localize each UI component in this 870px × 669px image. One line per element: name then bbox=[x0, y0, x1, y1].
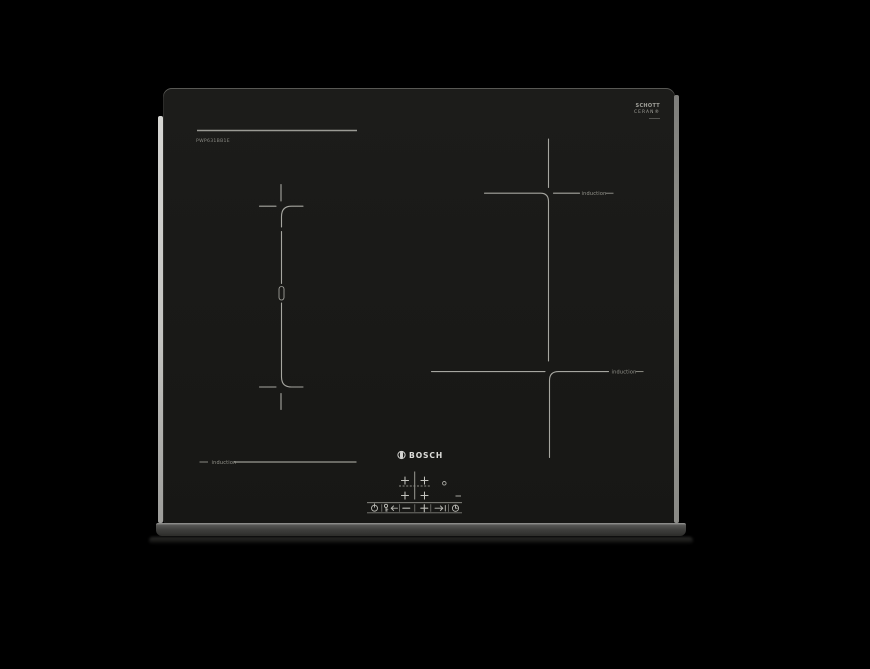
timer-clock-hands bbox=[456, 506, 458, 508]
product-photo-stage: PWP631BB1E SCHOTT CERAN® bbox=[0, 0, 870, 669]
cooktop-markings: PWP631BB1E SCHOTT CERAN® bbox=[0, 0, 870, 669]
boost-key[interactable] bbox=[435, 505, 445, 511]
right-zones-marking bbox=[432, 139, 609, 458]
induction-labels: induction induction induction bbox=[200, 191, 644, 466]
zone-top-right-cross bbox=[485, 193, 549, 361]
induction-label-bottom-left: induction bbox=[212, 460, 237, 466]
flex-zone-lower-elbow bbox=[282, 303, 304, 387]
zone-select-rear-right-key[interactable]: + bbox=[419, 472, 429, 487]
plus-key[interactable] bbox=[421, 505, 428, 512]
bosch-logo: BOSCH bbox=[398, 451, 443, 460]
flex-zone-marking bbox=[260, 185, 304, 410]
timer-key[interactable] bbox=[452, 505, 458, 511]
key-lock-icon-stem bbox=[386, 508, 388, 512]
zone-select-front-right-key[interactable]: + bbox=[419, 487, 429, 502]
zone-selector-grid: + + + + bbox=[399, 472, 461, 503]
bosch-logo-armature bbox=[400, 452, 403, 459]
boost-arrow-icon bbox=[435, 505, 445, 511]
zone-bottom-right-cross bbox=[550, 372, 609, 458]
flex-bridge-icon bbox=[279, 287, 284, 301]
model-print: PWP631BB1E bbox=[196, 131, 357, 145]
power-key[interactable] bbox=[372, 504, 378, 511]
arrow-left-icon bbox=[391, 506, 397, 511]
key-lock-key[interactable] bbox=[384, 504, 387, 511]
plus-key-icon bbox=[421, 505, 428, 512]
induction-label-top-right: induction bbox=[582, 191, 607, 197]
schott-line: SCHOTT bbox=[636, 103, 661, 109]
bosch-anchor-icon bbox=[398, 451, 405, 458]
bosch-wordmark: BOSCH bbox=[409, 451, 443, 460]
zone-select-rear-left-key[interactable]: + bbox=[400, 472, 410, 487]
induction-label-bottom-right: induction bbox=[612, 370, 637, 376]
zone-select-front-left-key[interactable]: + bbox=[400, 487, 410, 502]
indicator-dot bbox=[443, 482, 447, 486]
key-lock-icon bbox=[384, 504, 387, 507]
ceran-line: CERAN® bbox=[634, 108, 660, 115]
model-number: PWP631BB1E bbox=[196, 138, 230, 144]
arrow-left-key[interactable] bbox=[391, 506, 397, 511]
flex-zone-top-elbow bbox=[282, 206, 304, 227]
schott-ceran-logo: SCHOTT CERAN® bbox=[634, 103, 660, 119]
control-strip bbox=[367, 503, 462, 513]
